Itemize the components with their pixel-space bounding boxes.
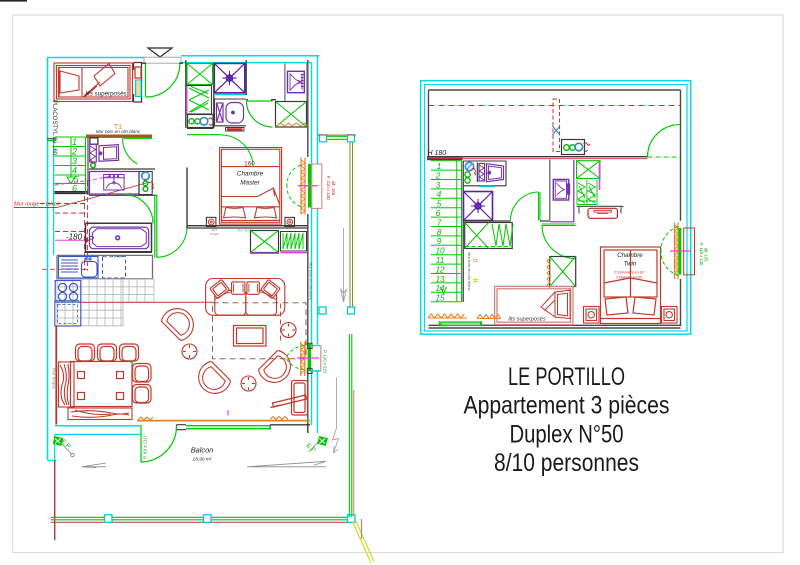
svg-text:H 180: H 180 (428, 150, 447, 157)
svg-text:8/10 personnes: 8/10 personnes (494, 449, 639, 477)
svg-text:Twin: Twin (624, 261, 637, 268)
svg-text:2: 2 (71, 147, 77, 157)
svg-text:lits superposés: lits superposés (85, 91, 126, 98)
svg-text:8: 8 (437, 228, 442, 237)
svg-text:10: 10 (435, 247, 445, 256)
svg-text:Mur brique: Mur brique (52, 368, 57, 390)
svg-text:Mur bois en clin blanc: Mur bois en clin blanc (96, 129, 141, 134)
svg-text:4: 4 (437, 190, 442, 199)
svg-text:6: 6 (436, 209, 441, 218)
svg-text:Mur bois en clin blanc: Mur bois en clin blanc (467, 252, 472, 291)
svg-text:lits superposés: lits superposés (508, 317, 546, 323)
svg-text:F. 116 x 120: F. 116 x 120 (699, 243, 704, 266)
svg-text:12: 12 (435, 265, 445, 274)
svg-text:14: 14 (435, 284, 445, 293)
svg-text:F. 110 x 120: F. 110 x 120 (326, 176, 331, 200)
svg-text:LE PORTILLO: LE PORTILLO (508, 363, 625, 391)
svg-text:PLACOSTYL de 160: PLACOSTYL de 160 (51, 100, 57, 156)
svg-text:Chambre: Chambre (237, 170, 264, 177)
svg-text:P. 83 x 210: P. 83 x 210 (143, 436, 148, 459)
svg-text:all. 165: all. 165 (331, 181, 336, 196)
svg-text:9: 9 (437, 237, 442, 246)
svg-text:Master: Master (240, 179, 260, 186)
svg-text:1: 1 (72, 137, 77, 147)
svg-text:7: 7 (437, 218, 442, 227)
svg-text:5: 5 (437, 200, 442, 209)
svg-text:Appartement 3 pièces: Appartement 3 pièces (464, 392, 670, 420)
svg-text:Mur bois en clin blanc: Mur bois en clin blanc (309, 262, 314, 301)
svg-text:15: 15 (435, 294, 445, 303)
svg-text:P. 120 x 215: P. 120 x 215 (323, 350, 328, 374)
svg-text:all. 165: all. 165 (704, 248, 709, 262)
svg-text:13: 13 (435, 275, 445, 284)
svg-text:3: 3 (436, 181, 441, 190)
svg-text:18.90 m²: 18.90 m² (193, 457, 212, 463)
svg-text:2 Matelas en 90: 2 Matelas en 90 (616, 276, 642, 280)
svg-text:Chambre: Chambre (617, 252, 643, 259)
svg-text:3: 3 (72, 156, 77, 166)
svg-text:beige: beige (210, 232, 219, 236)
svg-text:1: 1 (437, 162, 442, 171)
svg-text:2 Sommiers en 90: 2 Sommiers en 90 (614, 271, 643, 275)
svg-text:11: 11 (436, 256, 445, 265)
svg-text:Balcon: Balcon (191, 446, 214, 455)
svg-text:Duplex N°50: Duplex N°50 (510, 420, 624, 448)
svg-text:160: 160 (244, 160, 255, 167)
svg-text:2: 2 (435, 171, 441, 180)
svg-text:Mur rouge + miroir: Mur rouge + miroir (14, 202, 61, 208)
